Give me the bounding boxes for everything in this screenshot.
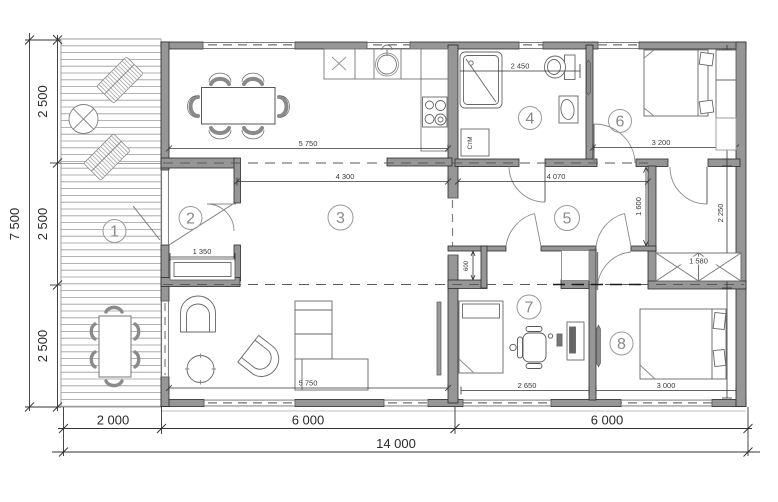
svg-text:4 070: 4 070 bbox=[547, 172, 566, 181]
svg-text:5: 5 bbox=[563, 211, 572, 228]
svg-text:6: 6 bbox=[616, 114, 625, 131]
svg-text:3 200: 3 200 bbox=[652, 138, 671, 147]
svg-text:1 580: 1 580 bbox=[689, 257, 708, 266]
svg-text:3: 3 bbox=[336, 210, 345, 227]
svg-text:2 450: 2 450 bbox=[511, 62, 530, 71]
svg-text:5 750: 5 750 bbox=[299, 379, 318, 388]
svg-text:2 000: 2 000 bbox=[97, 413, 130, 428]
svg-text:2: 2 bbox=[186, 211, 195, 228]
svg-text:4: 4 bbox=[526, 111, 535, 128]
svg-text:4 300: 4 300 bbox=[336, 172, 355, 181]
svg-text:6 000: 6 000 bbox=[292, 413, 325, 428]
svg-text:СтМ: СтМ bbox=[467, 136, 474, 149]
svg-text:1: 1 bbox=[110, 224, 119, 241]
svg-text:2 250: 2 250 bbox=[716, 204, 725, 223]
svg-text:6 000: 6 000 bbox=[591, 413, 624, 428]
svg-text:1 600: 1 600 bbox=[634, 197, 643, 216]
svg-text:2 650: 2 650 bbox=[518, 381, 537, 390]
svg-text:2 500: 2 500 bbox=[35, 330, 50, 363]
svg-text:2 500: 2 500 bbox=[35, 208, 50, 241]
svg-text:8: 8 bbox=[617, 336, 626, 353]
svg-text:5 750: 5 750 bbox=[299, 139, 318, 148]
svg-text:3 000: 3 000 bbox=[657, 381, 676, 390]
svg-text:14 000: 14 000 bbox=[376, 436, 416, 451]
svg-text:7: 7 bbox=[525, 300, 534, 317]
svg-text:7 500: 7 500 bbox=[7, 208, 22, 241]
svg-text:1 350: 1 350 bbox=[193, 247, 212, 256]
svg-text:600: 600 bbox=[464, 260, 470, 271]
svg-text:2 500: 2 500 bbox=[35, 85, 50, 118]
